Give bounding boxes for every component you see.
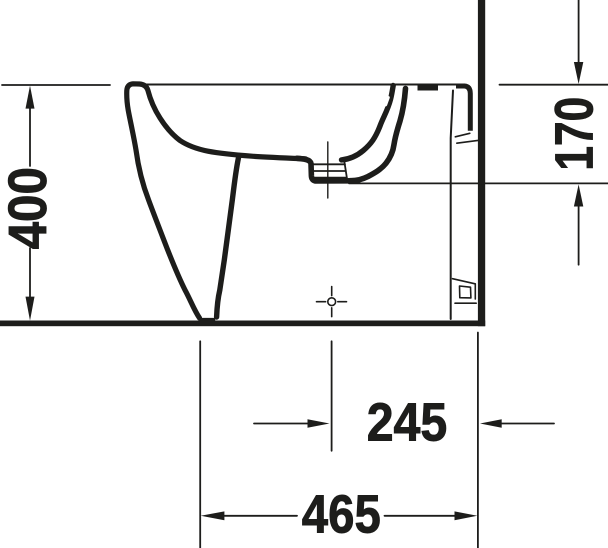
- svg-text:170: 170: [545, 97, 604, 171]
- svg-text:465: 465: [302, 486, 381, 545]
- svg-text:245: 245: [367, 394, 448, 453]
- svg-text:400: 400: [0, 167, 58, 249]
